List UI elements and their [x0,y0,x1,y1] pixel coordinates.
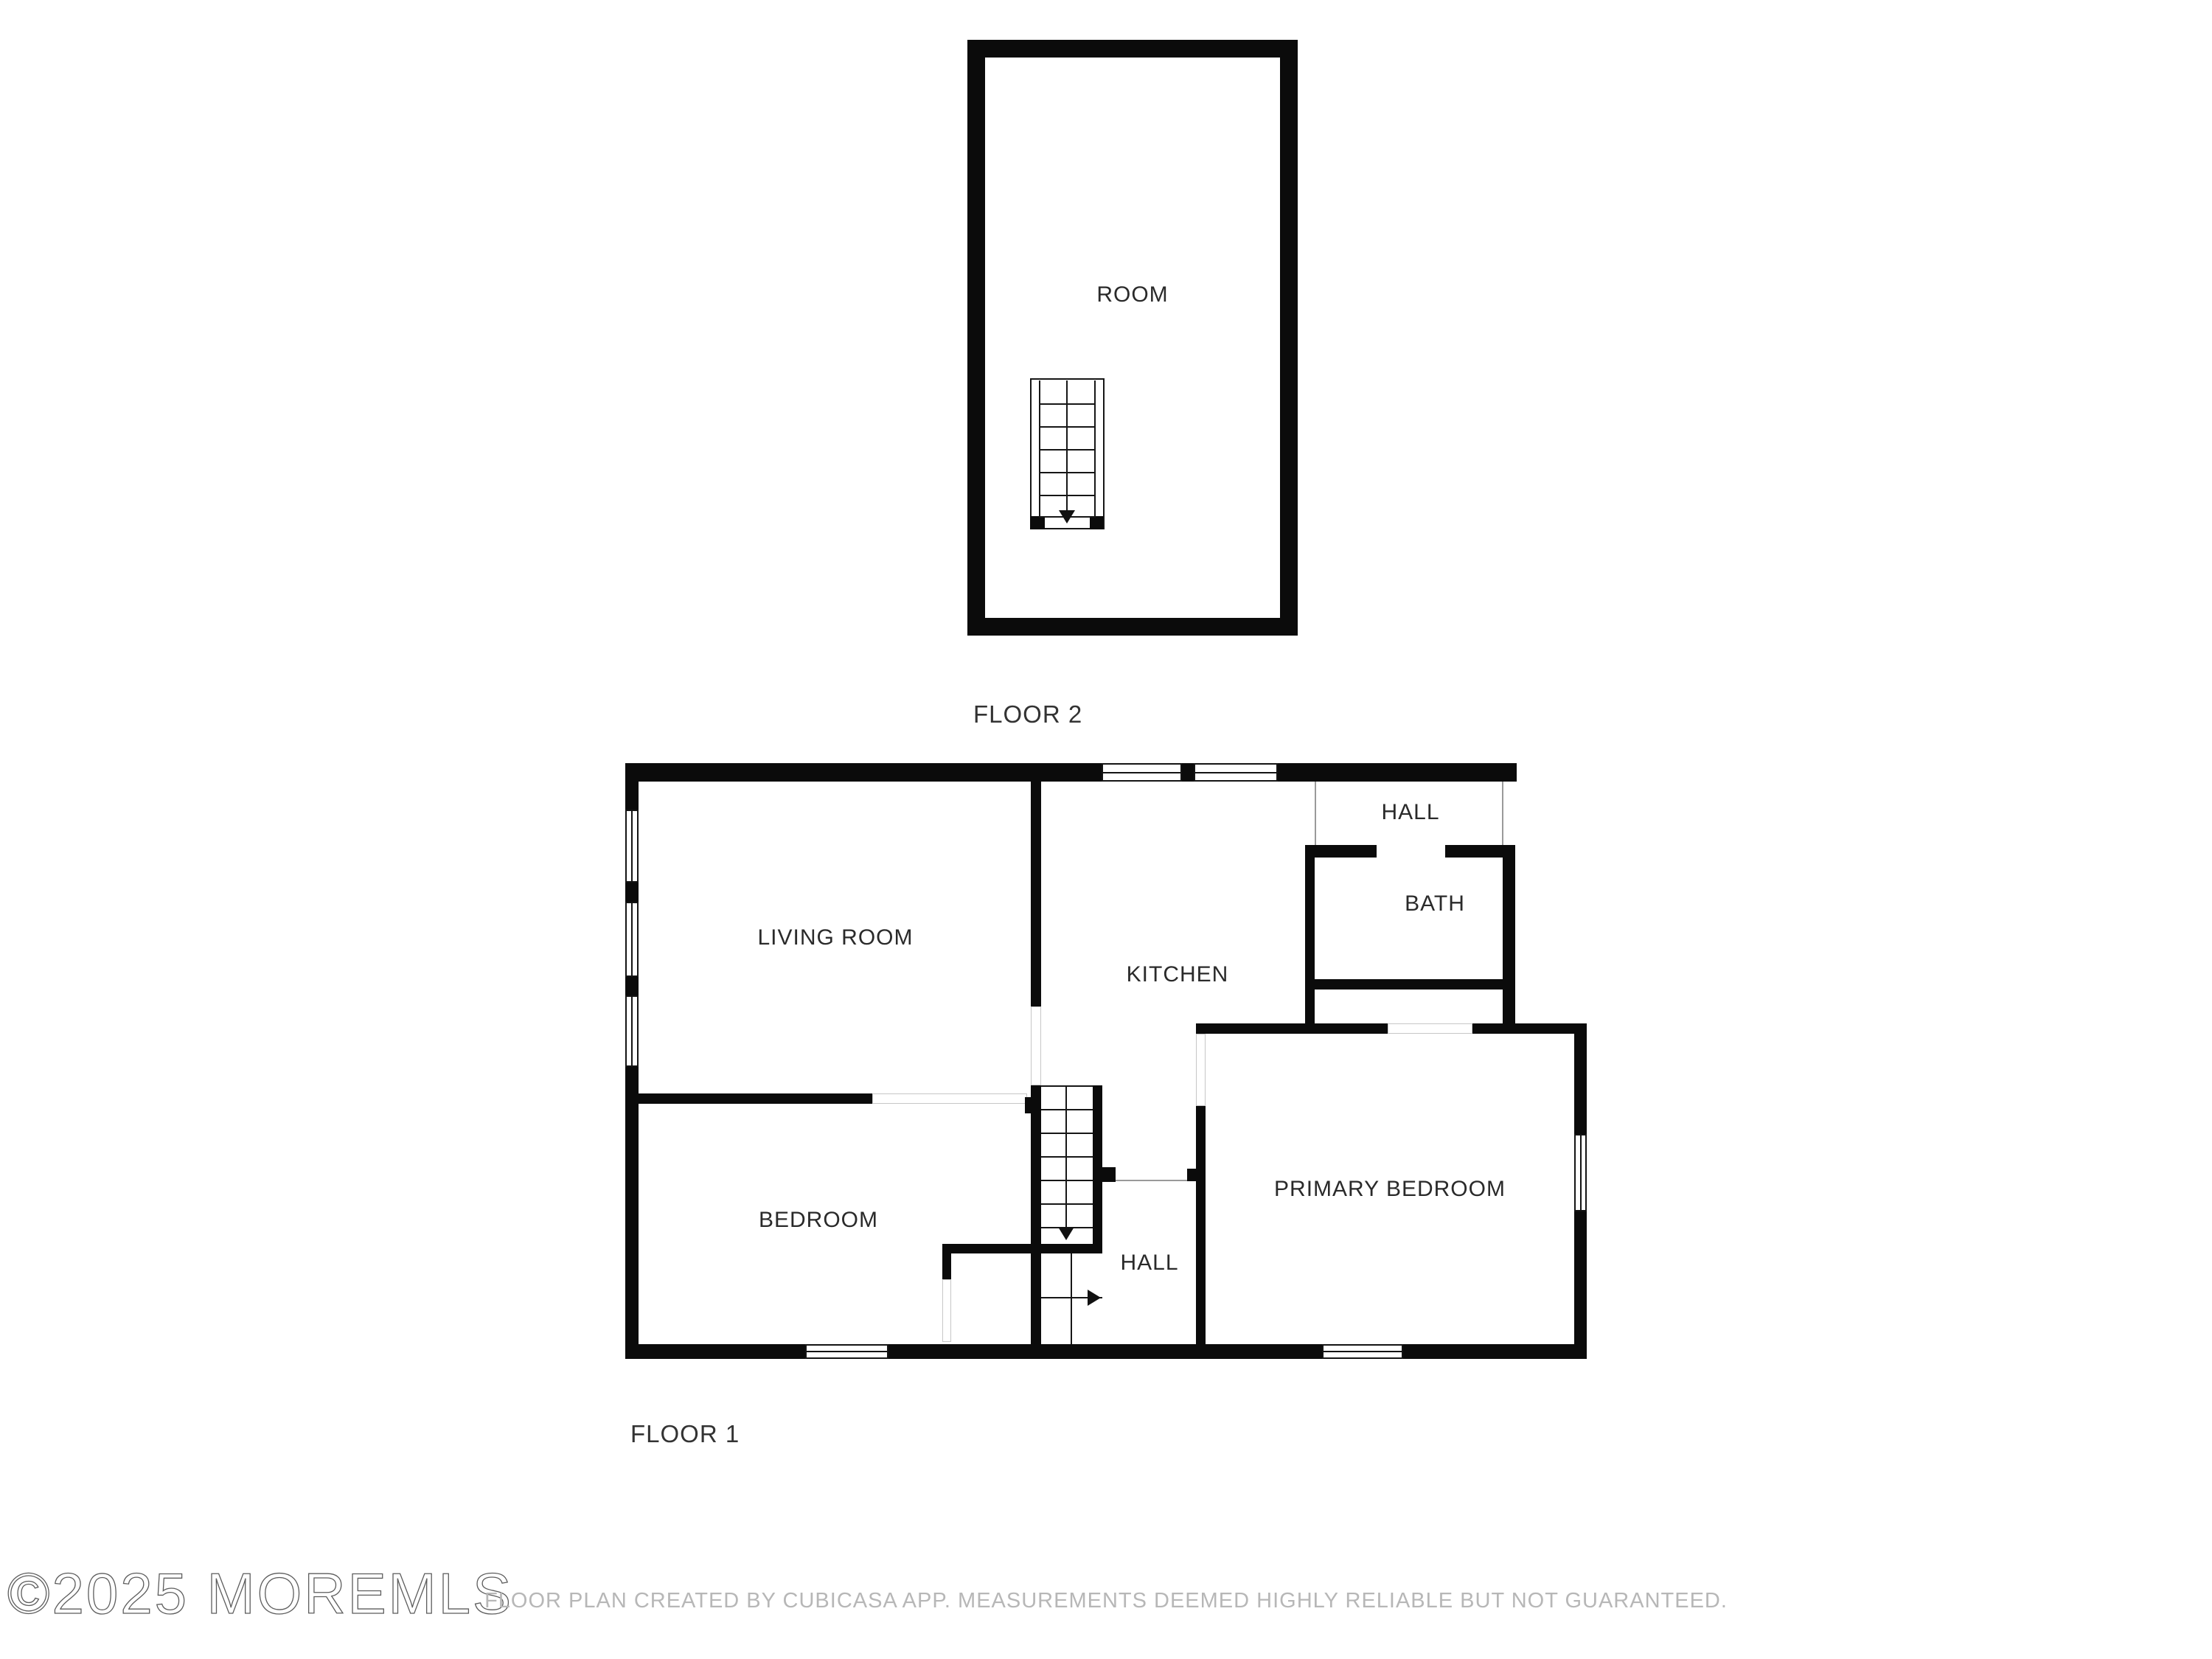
wall [1574,1211,1587,1344]
window-center-line [1324,1351,1402,1352]
window-center-line [807,1351,887,1352]
window-center-line [631,811,633,881]
wall [1574,1034,1587,1134]
room-label-kitchen: KITCHEN [1127,962,1229,987]
window [1322,1344,1403,1359]
wall [1093,1085,1102,1253]
wall [1196,1023,1388,1034]
window-center-line [1103,772,1180,773]
stair-tread-line [1041,1085,1093,1087]
stair-tread-line [1041,1156,1093,1158]
stair-direction-arrow [1059,510,1075,524]
wall [967,58,985,618]
window [805,1344,888,1359]
stair-tread-line [1066,380,1068,512]
room-label-living-room: LIVING ROOM [757,925,913,950]
wall [1182,763,1194,782]
door-opening [942,1279,951,1342]
door-opening [1031,1006,1041,1085]
room-label-hall-lower: HALL [1120,1251,1178,1276]
window [625,902,639,977]
room-label-floor2-room: ROOM [1096,282,1168,307]
stair-tread-line [1041,1109,1093,1110]
door-opening [1388,1023,1472,1034]
wall [625,1344,805,1359]
wall [1187,1169,1196,1181]
stair-tread-line [1041,1133,1093,1134]
wall [625,763,639,810]
stair-tread-line [1041,1180,1093,1181]
window [625,810,639,883]
floor2-label: FLOOR 2 [973,700,1082,728]
wall [1305,845,1315,1032]
boundary-line [1502,782,1503,845]
wall [1305,979,1503,990]
wall [1472,1023,1587,1034]
window-center-line [1195,772,1276,773]
window [1194,763,1278,782]
window-center-line [1580,1135,1582,1210]
footer-disclaimer: FLOOR PLAN CREATED BY CUBICASA APP. MEAS… [0,1589,2212,1613]
wall [1280,58,1298,618]
room-label-primary-bedroom: PRIMARY BEDROOM [1274,1177,1506,1202]
wall [625,1067,639,1359]
wall [1025,1097,1031,1113]
wall [1196,1106,1206,1344]
door-opening [1196,1034,1206,1106]
boundary-line [1315,782,1316,845]
stair-tread-line [1094,380,1096,518]
room-label-bedroom: BEDROOM [759,1208,878,1233]
window-center-line [631,903,633,975]
boundary-line [1116,1180,1187,1181]
window [625,995,639,1067]
door-opening [872,1093,1027,1104]
stair-tread-line [1041,1203,1093,1205]
wall [638,1093,872,1104]
wall [888,1344,1322,1359]
window [1102,763,1182,782]
wall [625,883,639,902]
floor1-label: FLOOR 1 [630,1420,740,1448]
wall [1102,1167,1116,1182]
stair-direction-arrow [1058,1227,1074,1240]
wall [625,763,1102,782]
wall [1403,1344,1587,1359]
wall [967,40,1298,58]
wall [1278,763,1517,782]
window [1574,1134,1587,1211]
floor-plan-canvas: ROOM LIVING ROOM KITCHEN HALL BATH PRIMA… [0,0,2212,1659]
room-label-hall-upper: HALL [1381,800,1439,825]
wall [967,618,1298,636]
wall [1503,845,1515,1034]
stair-direction-arrow [1088,1290,1101,1306]
wall [942,1244,1102,1253]
wall [1305,845,1377,858]
wall [942,1253,951,1279]
wall [1090,516,1103,529]
wall [625,977,639,995]
wall [1031,782,1041,1006]
wall [1030,516,1045,529]
stair-tread-line [1071,1253,1072,1344]
wall [1031,1085,1041,1344]
stair-tread-line [1065,1085,1067,1231]
window-center-line [631,997,633,1065]
room-label-bath: BATH [1405,891,1465,917]
